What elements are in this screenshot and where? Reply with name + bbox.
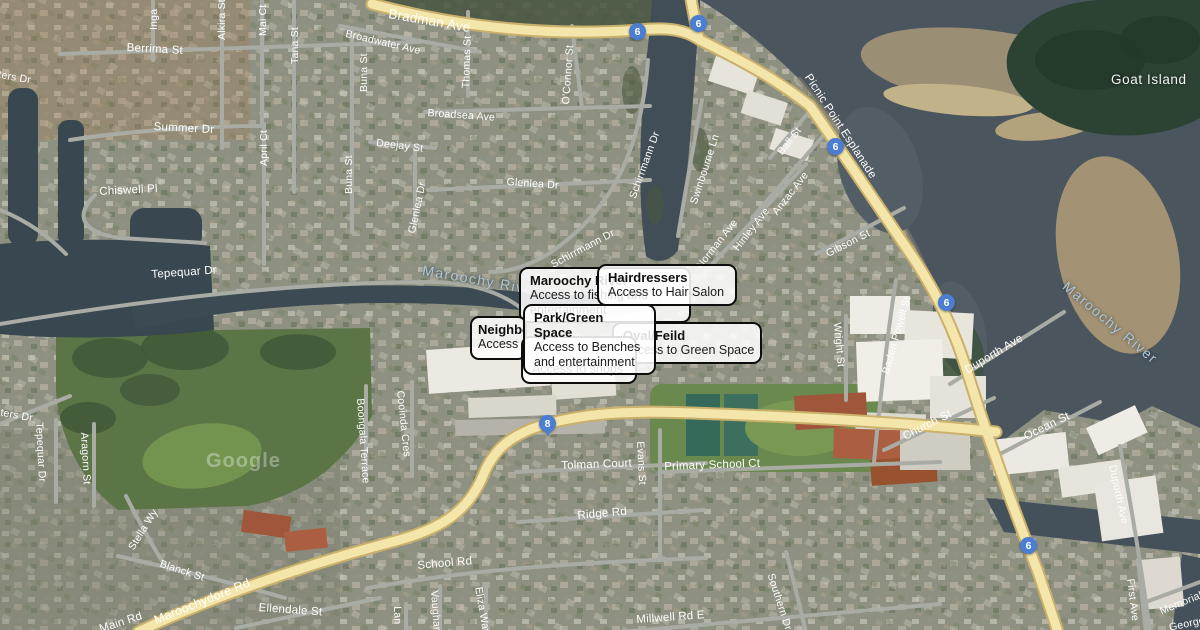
- route-8-badge: 8: [539, 415, 556, 432]
- tooltip-body: Access to Benches and entertainment: [534, 340, 645, 369]
- tooltip-hairdressers[interactable]: Hairdressers Access to Hair Salon: [597, 264, 737, 306]
- street-label-inga: Inga: [148, 9, 160, 30]
- island-label-goat: Goat Island: [1111, 72, 1187, 87]
- route-6-badge: 6: [690, 15, 707, 32]
- street-label-evans: Evans St: [634, 441, 648, 485]
- street-label-april: April Ct: [258, 130, 270, 166]
- route-8-number: 8: [545, 418, 551, 430]
- tooltip-title: Neighbo: [478, 322, 519, 337]
- tooltip-body: Access to Hair Salon: [608, 285, 726, 300]
- tooltip-neighbours[interactable]: Neighbo Access: [470, 316, 527, 360]
- street-label-lan: Lan: [391, 606, 404, 625]
- tooltip-park-green-space[interactable]: Park/Green Space Access to Benches and e…: [523, 304, 656, 375]
- street-label-buna-south: Buna St: [343, 155, 355, 194]
- tooltip-title: Park/Green Space: [534, 310, 645, 340]
- tooltip-body: Access: [478, 337, 519, 352]
- street-label-thomas: Thomas St: [460, 35, 474, 88]
- tooltip-title: Hairdressers: [608, 270, 726, 285]
- route-6-badge: 6: [1020, 537, 1037, 554]
- route-6-badge: 6: [827, 138, 844, 155]
- street-label-buna-north: Buna St: [358, 53, 370, 92]
- route-6-badge: 6: [629, 23, 646, 40]
- street-label-mai-ct: Mai Ct: [257, 4, 269, 36]
- street-label-tana: Tana St: [289, 27, 301, 64]
- street-label-tolman: Tolman Court: [561, 458, 632, 472]
- map-viewport[interactable]: Bradman Ave Broadwater Ave Berrima St In…: [0, 0, 1200, 630]
- route-6-badge: 6: [938, 294, 955, 311]
- badge-pointer: [544, 430, 552, 436]
- google-watermark: Google: [206, 450, 281, 473]
- street-label-alkira: Alkira St: [216, 0, 228, 40]
